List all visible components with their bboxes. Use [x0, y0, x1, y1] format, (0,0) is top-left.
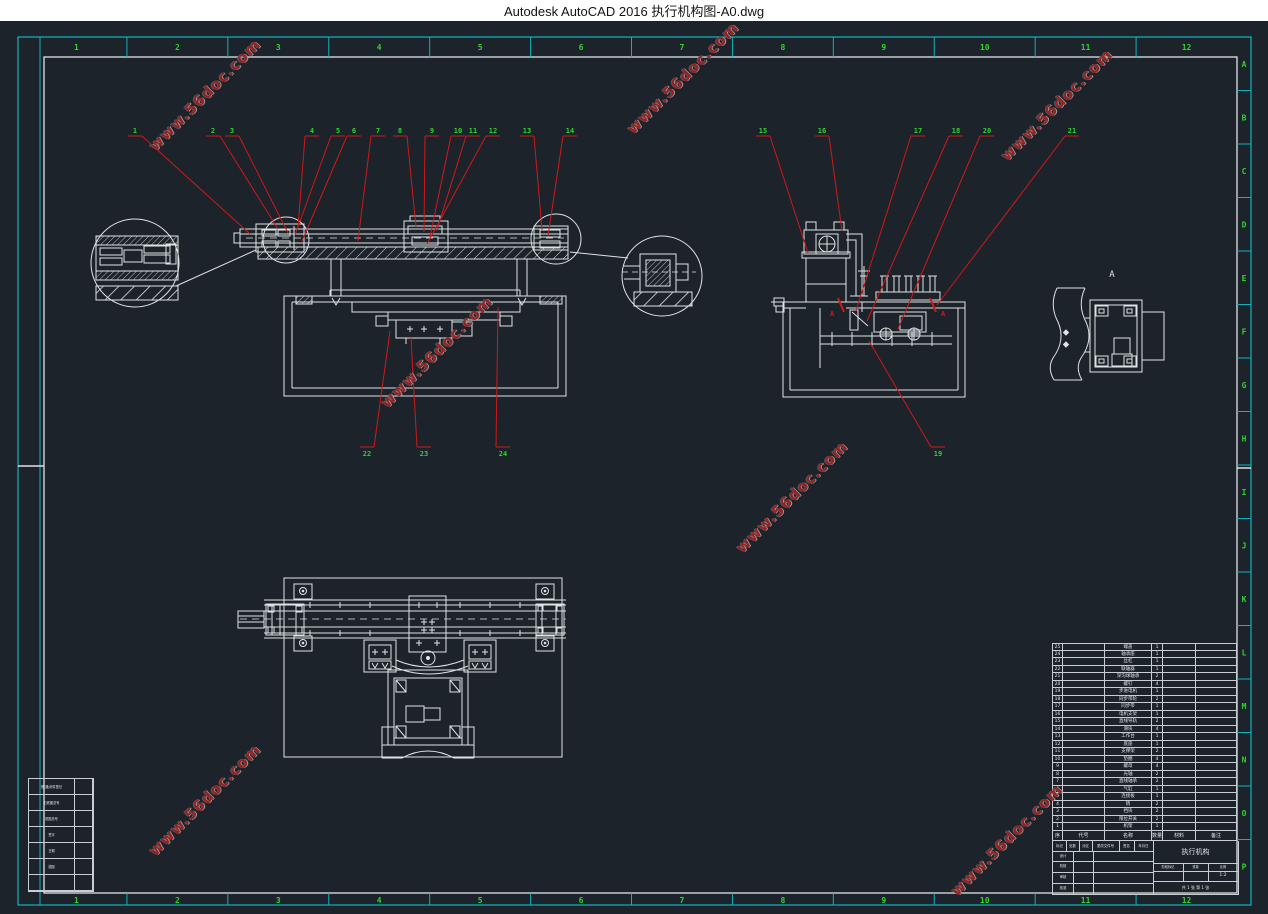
bom-cell: 端盖 — [1105, 643, 1152, 651]
bom-cell — [1063, 793, 1105, 801]
bom-cell: 9 — [1052, 763, 1063, 771]
bom-cell: 1 — [1152, 741, 1163, 749]
border-top-label: 3 — [276, 43, 281, 52]
border-right-label: F — [1242, 327, 1247, 336]
border-bottom-label: 4 — [377, 896, 382, 905]
bom-cell: 24 — [1052, 651, 1063, 659]
signature-label: 签字 — [29, 827, 75, 843]
signature-value — [75, 843, 93, 859]
callout-number: 14 — [566, 127, 574, 135]
callout-leader — [829, 136, 842, 231]
bom-cell — [1163, 763, 1196, 771]
bom-cell: 深沟球轴承 — [1105, 673, 1152, 681]
signature-row: 借(通)用件登记 — [29, 779, 93, 795]
border-top-label: 8 — [780, 43, 785, 52]
bom-row: 8光轴2 — [1052, 771, 1237, 779]
border-bottom-label: 6 — [579, 896, 584, 905]
border-right-label: O — [1242, 809, 1247, 818]
callout-number: 11 — [469, 127, 477, 135]
bom-row: 11支撑架2 — [1052, 748, 1237, 756]
bom-cell: 同步带 — [1105, 703, 1152, 711]
signature-label: 描图 — [29, 859, 75, 875]
bom-cell — [1163, 726, 1196, 734]
bom-cell: 连接板 — [1105, 793, 1152, 801]
bom-cell: 直线轴承 — [1105, 778, 1152, 786]
bom-cell: 挡块 — [1105, 808, 1152, 816]
bom-cell — [1196, 771, 1237, 779]
signature-label: 旧底图总号 — [29, 795, 75, 811]
bom-cell: 1 — [1152, 643, 1163, 651]
bom-cell — [1063, 673, 1105, 681]
callout-leader — [298, 136, 305, 228]
bom-row: 19步进电机1 — [1052, 688, 1237, 696]
callout-leader — [358, 136, 371, 241]
callout-leader — [548, 136, 563, 236]
bom-cell — [1063, 771, 1105, 779]
bom-cell — [1063, 643, 1105, 651]
bom-cell: 15 — [1052, 718, 1063, 726]
bom-cell: 气缸 — [1105, 786, 1152, 794]
bom-cell — [1196, 756, 1237, 764]
border-bottom-label: 9 — [881, 896, 886, 905]
callout-number: 16 — [818, 127, 826, 135]
bom-cell — [1196, 823, 1237, 831]
bom-cell: 丝杠 — [1105, 658, 1152, 666]
section-view-label: A — [1109, 270, 1115, 280]
bom-cell — [1163, 688, 1196, 696]
bom-table: 25端盖124轴承座123丝杠122联轴器121深沟球轴承220螺钉419步进电… — [1052, 643, 1237, 914]
bom-cell — [1163, 733, 1196, 741]
bom-cell: 1 — [1152, 658, 1163, 666]
bom-cell: 4 — [1152, 726, 1163, 734]
border-bottom-label: 10 — [980, 896, 990, 905]
bom-cell: 垫圈 — [1105, 756, 1152, 764]
border-right-label: G — [1242, 381, 1247, 390]
border-right-label: H — [1242, 434, 1247, 443]
bom-cell: 底座 — [1105, 741, 1152, 749]
border-right-label: J — [1242, 541, 1247, 550]
bom-cell — [1196, 681, 1237, 689]
bom-cell — [1063, 696, 1105, 704]
bom-cell: 限位开关 — [1105, 816, 1152, 824]
border-right-label: N — [1242, 755, 1247, 764]
signature-value — [75, 827, 93, 843]
bom-row: 7直线轴承2 — [1052, 778, 1237, 786]
bom-cell — [1063, 726, 1105, 734]
signature-label: 日期 — [29, 843, 75, 859]
bom-cell — [1063, 688, 1105, 696]
border-bottom-label: 5 — [478, 896, 483, 905]
bom-header-row: 序号代号名称数量材料备注 — [1052, 831, 1237, 841]
bom-cell: 2 — [1152, 808, 1163, 816]
bom-cell: 16 — [1052, 711, 1063, 719]
bom-cell — [1063, 801, 1105, 809]
bom-cell: 2 — [1152, 718, 1163, 726]
bom-cell — [1163, 718, 1196, 726]
border-top-label: 6 — [579, 43, 584, 52]
bom-cell: 同步带轮 — [1105, 696, 1152, 704]
bom-row: 16电机支架1 — [1052, 711, 1237, 719]
front-view — [91, 214, 702, 396]
window-titlebar: Autodesk AutoCAD 2016 执行机构图-A0.dwg — [0, 0, 1268, 21]
bom-cell — [1063, 711, 1105, 719]
bom-header-cell: 序号 — [1052, 831, 1063, 841]
bom-cell: 步进电机 — [1105, 688, 1152, 696]
border-bottom-label: 1 — [74, 896, 79, 905]
bom-cell — [1196, 696, 1237, 704]
bom-cell: 1 — [1152, 711, 1163, 719]
border-right-label: B — [1242, 113, 1247, 122]
bom-header: 序号代号名称数量材料备注 — [1052, 831, 1237, 841]
bom-cell — [1163, 673, 1196, 681]
bom-row: 2限位开关2 — [1052, 816, 1237, 824]
bom-cell: 4 — [1152, 681, 1163, 689]
bom-cell — [1063, 786, 1105, 794]
bom-cell: 21 — [1052, 673, 1063, 681]
signature-value — [75, 859, 93, 875]
callout-number: 13 — [523, 127, 531, 135]
bom-row: 1机架1 — [1052, 823, 1237, 831]
callout-number: 5 — [336, 127, 340, 135]
title-block: 标记处数分区更改文件号签名年月日设计校核审核批准执行机构阶段标记重量比例1:2共… — [1052, 841, 1239, 895]
bom-cell — [1163, 801, 1196, 809]
bom-cell — [1063, 816, 1105, 824]
border-right-label: I — [1242, 488, 1247, 497]
signature-row: 日期 — [29, 843, 93, 859]
bom-row: 17同步带1 — [1052, 703, 1237, 711]
bom-cell: 1 — [1152, 793, 1163, 801]
border-right-label: L — [1242, 648, 1247, 657]
border-top-label: 11 — [1081, 43, 1091, 52]
border-right-label: E — [1242, 274, 1247, 283]
callout-leader — [770, 136, 808, 253]
callout-number: 24 — [499, 450, 507, 458]
titleblock-cell — [1093, 883, 1154, 895]
bom-row: 6气缸1 — [1052, 786, 1237, 794]
bom-cell: 联轴器 — [1105, 666, 1152, 674]
bom-row: 5连接板1 — [1052, 793, 1237, 801]
border-top-label: 10 — [980, 43, 990, 52]
border-right-label: K — [1242, 595, 1247, 604]
bom-cell — [1063, 823, 1105, 831]
bom-cell — [1196, 733, 1237, 741]
bom-cell: 工作台 — [1105, 733, 1152, 741]
callout-number: 23 — [420, 450, 428, 458]
bom-cell: 8 — [1052, 771, 1063, 779]
callout-number: 19 — [934, 450, 942, 458]
bom-cell: 19 — [1052, 688, 1063, 696]
bom-cell — [1163, 681, 1196, 689]
bom-cell: 2 — [1152, 696, 1163, 704]
border-bottom-label: 8 — [780, 896, 785, 905]
bom-cell: 1 — [1152, 786, 1163, 794]
bom-cell — [1063, 741, 1105, 749]
signature-label: 底图总号 — [29, 811, 75, 827]
bom-cell: 1 — [1152, 688, 1163, 696]
bom-cell: 销 — [1105, 801, 1152, 809]
bom-cell — [1196, 748, 1237, 756]
callout-leader — [534, 136, 542, 230]
bom-cell: 螺钉 — [1105, 681, 1152, 689]
signature-row: 描图 — [29, 859, 93, 875]
bom-cell — [1163, 823, 1196, 831]
signature-label: 借(通)用件登记 — [29, 779, 75, 795]
titleblock-cell: 共 1 张 第 1 张 — [1153, 881, 1239, 895]
bom-row: 22联轴器1 — [1052, 666, 1237, 674]
bom-cell: 2 — [1152, 816, 1163, 824]
border-top-label: 7 — [680, 43, 685, 52]
bom-cell — [1063, 718, 1105, 726]
bom-cell — [1063, 681, 1105, 689]
border-top-label: 2 — [175, 43, 180, 52]
bom-cell: 1 — [1052, 823, 1063, 831]
bom-cell — [1196, 786, 1237, 794]
signature-value — [75, 795, 93, 811]
bom-cell — [1196, 808, 1237, 816]
border-top-label: 1 — [74, 43, 79, 52]
signature-value — [75, 811, 93, 827]
bom-cell: 滑块 — [1105, 726, 1152, 734]
callout-leader — [496, 307, 498, 447]
border-top-label: 9 — [881, 43, 886, 52]
bom-row: 3挡块2 — [1052, 808, 1237, 816]
bom-cell: 1 — [1152, 666, 1163, 674]
callout-number: 12 — [489, 127, 497, 135]
bom-row: 15直线导轨2 — [1052, 718, 1237, 726]
bom-row: 12底座1 — [1052, 741, 1237, 749]
callout-number: 7 — [376, 127, 380, 135]
bom-header-cell: 备注 — [1196, 831, 1237, 841]
callout-number: 8 — [398, 127, 402, 135]
bom-cell — [1163, 778, 1196, 786]
signature-row — [29, 875, 93, 891]
bom-cell — [1063, 703, 1105, 711]
callout-leader — [867, 136, 949, 321]
titleblock-cell — [1073, 883, 1094, 895]
bom-cell — [1196, 741, 1237, 749]
bom-cell — [1063, 808, 1105, 816]
bom-cell — [1063, 748, 1105, 756]
bom-cell: 机架 — [1105, 823, 1152, 831]
bom-cell: 轴承座 — [1105, 651, 1152, 659]
bom-cell: 1 — [1152, 823, 1163, 831]
bom-cell — [1163, 786, 1196, 794]
bom-cell: 20 — [1052, 681, 1063, 689]
callout-number: 10 — [454, 127, 462, 135]
bom-row: 20螺钉4 — [1052, 681, 1237, 689]
callout-number: 2 — [211, 127, 215, 135]
bom-cell — [1196, 726, 1237, 734]
bom-header-cell: 代号 — [1063, 831, 1105, 841]
border-top-label: 12 — [1182, 43, 1192, 52]
bom-header-cell: 数量 — [1152, 831, 1163, 841]
section-view — [1050, 288, 1164, 380]
bom-row: 24轴承座1 — [1052, 651, 1237, 659]
callout-number: 9 — [430, 127, 434, 135]
bom-cell: 2 — [1152, 778, 1163, 786]
bom-cell: 1 — [1152, 703, 1163, 711]
signature-value — [75, 875, 93, 891]
bom-cell — [1196, 666, 1237, 674]
bom-cell — [1063, 658, 1105, 666]
signature-row: 签字 — [29, 827, 93, 843]
titleblock-cell: 批准 — [1053, 883, 1074, 895]
bom-cell — [1163, 771, 1196, 779]
signature-row: 底图总号 — [29, 811, 93, 827]
bom-cell: 2 — [1052, 816, 1063, 824]
bom-row: 25端盖1 — [1052, 643, 1237, 651]
callout-number: 6 — [352, 127, 356, 135]
bom-cell: 2 — [1152, 801, 1163, 809]
section-cut-label: A — [830, 310, 835, 318]
signature-value — [75, 779, 93, 795]
plan-view — [238, 578, 566, 758]
bom-cell: 支撑架 — [1105, 748, 1152, 756]
bom-row: 10垫圈4 — [1052, 756, 1237, 764]
bom-cell: 23 — [1052, 658, 1063, 666]
callout-number: 21 — [1068, 127, 1076, 135]
bom-cell — [1163, 711, 1196, 719]
bom-cell — [1163, 703, 1196, 711]
callout-number: 22 — [363, 450, 371, 458]
border-top-label: 4 — [377, 43, 382, 52]
bom-cell — [1063, 651, 1105, 659]
bom-cell — [1163, 643, 1196, 651]
bom-cell: 11 — [1052, 748, 1063, 756]
bom-cell: 1 — [1152, 651, 1163, 659]
bom-cell — [1163, 808, 1196, 816]
bom-cell — [1196, 763, 1237, 771]
bom-cell: 12 — [1052, 741, 1063, 749]
bom-cell: 4 — [1152, 763, 1163, 771]
bom-cell: 17 — [1052, 703, 1063, 711]
bom-cell: 光轴 — [1105, 771, 1152, 779]
bom-cell: 18 — [1052, 696, 1063, 704]
callout-leader — [411, 338, 417, 447]
callout-leader — [302, 136, 347, 241]
callout-number: 20 — [983, 127, 991, 135]
bom-cell: 2 — [1152, 771, 1163, 779]
callout-leader — [424, 136, 425, 232]
callout-number: 3 — [230, 127, 234, 135]
drawing-canvas[interactable]: 112233445566778899101011111212ABCDEFGHIJ… — [0, 21, 1268, 914]
border-top-label: 5 — [478, 43, 483, 52]
bom-row: 18同步带轮2 — [1052, 696, 1237, 704]
bom-cell — [1163, 748, 1196, 756]
bom-cell — [1063, 763, 1105, 771]
section-cut-label: A — [941, 310, 946, 318]
bom-cell — [1196, 651, 1237, 659]
bom-row: 14滑块4 — [1052, 726, 1237, 734]
callout-leader — [407, 136, 416, 227]
bom-cell — [1196, 658, 1237, 666]
bom-cell: 1 — [1152, 733, 1163, 741]
bom-header-cell: 名称 — [1105, 831, 1152, 841]
callout-leader — [937, 136, 1065, 305]
bom-cell — [1196, 711, 1237, 719]
bom-cell — [1163, 741, 1196, 749]
border-bottom-label: 2 — [175, 896, 180, 905]
border-bottom-label: 7 — [680, 896, 685, 905]
border-right-label: A — [1242, 60, 1247, 69]
bom-cell — [1196, 816, 1237, 824]
callout-number: 1 — [133, 127, 137, 135]
callout-leader — [427, 136, 486, 244]
bom-cell — [1063, 756, 1105, 764]
border-right-label: C — [1242, 167, 1247, 176]
titleblock-cell: 执行机构 — [1153, 841, 1239, 864]
signature-table: 借(通)用件登记旧底图总号底图总号签字日期描图 — [28, 778, 94, 892]
bom-cell — [1163, 756, 1196, 764]
callout-number: 15 — [759, 127, 767, 135]
bom-cell: 3 — [1052, 808, 1063, 816]
bom-row: 13工作台1 — [1052, 733, 1237, 741]
bom-rows: 25端盖124轴承座123丝杠122联轴器121深沟球轴承220螺钉419步进电… — [1052, 643, 1237, 831]
bom-cell — [1196, 643, 1237, 651]
border-right-label: D — [1242, 220, 1247, 229]
bom-cell — [1163, 793, 1196, 801]
bom-cell — [1063, 778, 1105, 786]
bom-cell — [1196, 718, 1237, 726]
bom-cell — [1196, 778, 1237, 786]
callout-leader — [239, 136, 288, 233]
bom-row: 21深沟球轴承2 — [1052, 673, 1237, 681]
bom-cell: 螺母 — [1105, 763, 1152, 771]
bom-cell: 直线导轨 — [1105, 718, 1152, 726]
signature-label — [29, 875, 75, 891]
bom-cell: 4 — [1152, 756, 1163, 764]
bom-cell — [1163, 666, 1196, 674]
bom-cell — [1163, 816, 1196, 824]
signature-row: 旧底图总号 — [29, 795, 93, 811]
bom-cell — [1196, 703, 1237, 711]
bom-cell: 22 — [1052, 666, 1063, 674]
bom-row: 4销2 — [1052, 801, 1237, 809]
callout-number: 18 — [952, 127, 960, 135]
bom-cell: 2 — [1152, 673, 1163, 681]
border-right-label: P — [1242, 862, 1247, 871]
callout-leader — [869, 341, 931, 447]
bom-cell — [1163, 651, 1196, 659]
bom-cell: 10 — [1052, 756, 1063, 764]
bom-cell — [1196, 673, 1237, 681]
bom-cell — [1196, 801, 1237, 809]
window-title: Autodesk AutoCAD 2016 执行机构图-A0.dwg — [504, 1, 764, 20]
bom-cell: 25 — [1052, 643, 1063, 651]
bom-cell: 电机支架 — [1105, 711, 1152, 719]
callout-number: 17 — [914, 127, 922, 135]
bom-cell — [1196, 793, 1237, 801]
bom-header-cell: 材料 — [1163, 831, 1196, 841]
bom-cell: 13 — [1052, 733, 1063, 741]
bom-cell — [1196, 688, 1237, 696]
bom-row: 9螺母4 — [1052, 763, 1237, 771]
bom-cell — [1163, 696, 1196, 704]
border-right-label: M — [1242, 702, 1247, 711]
bom-row: 23丝杠1 — [1052, 658, 1237, 666]
bom-cell: 2 — [1152, 748, 1163, 756]
bom-cell: 14 — [1052, 726, 1063, 734]
bom-cell — [1063, 666, 1105, 674]
bom-cell — [1163, 658, 1196, 666]
border-bottom-label: 3 — [276, 896, 281, 905]
callout-number: 4 — [310, 127, 314, 135]
bom-cell — [1063, 733, 1105, 741]
